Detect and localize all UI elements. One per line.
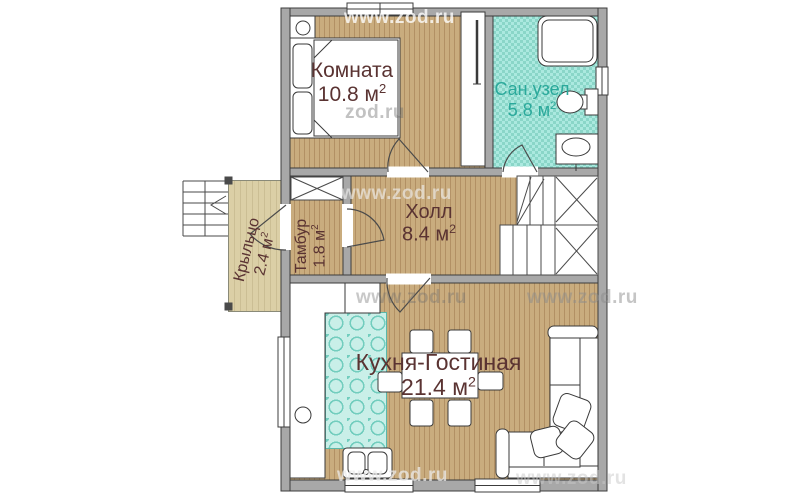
window-bottom-2: [475, 479, 540, 492]
bathroom-sink: [556, 134, 598, 171]
room-name: Сан.узел: [477, 80, 587, 100]
floor-plan-canvas: Комната 10.8 м2 Сан.узел 5.8 м2 Холл 8.4…: [0, 0, 795, 496]
room-area-value: 8.4 м: [402, 224, 449, 246]
room-label-bedroom: Комната 10.8 м2: [288, 59, 416, 106]
nightstand: [290, 16, 315, 40]
window-bottom-1: [345, 479, 413, 492]
room-area-sup: 2: [310, 224, 321, 230]
room-area: 5.8 м2: [477, 100, 587, 121]
wall-hall-kitchen: [290, 275, 598, 283]
room-area: 21.4 м2: [351, 375, 526, 400]
room-area-sup: 2: [468, 375, 476, 391]
staircase: [500, 176, 598, 275]
room-area-value: 1.8 м: [311, 230, 328, 268]
room-label-tambour: Тамбур 1.8 м2: [293, 191, 329, 301]
room-label-kitchen-living: Кухня-Гостиная 21.4 м2: [351, 350, 526, 401]
room-name: Холл: [379, 201, 479, 223]
room-name: Кухня-Гостиная: [351, 350, 526, 375]
kitchen-sink: [343, 448, 392, 478]
wall-bottom: [281, 480, 607, 491]
room-label-hall: Холл 8.4 м2: [379, 201, 479, 246]
hob: [295, 407, 311, 423]
room-label-bathroom: Сан.узел 5.8 м2: [477, 80, 587, 121]
room-area: 10.8 м2: [288, 82, 416, 106]
room-area-sup: 2: [379, 81, 386, 96]
porch-post: [225, 303, 232, 310]
wall-top: [281, 8, 607, 16]
chair: [410, 400, 433, 426]
room-area: 8.4 м2: [379, 223, 479, 246]
window-left: [278, 337, 290, 427]
room-area-value: 10.8 м: [318, 83, 379, 106]
shower: [538, 16, 597, 66]
room-area-value: 5.8 м: [508, 100, 550, 120]
stair-direction-arrow: [211, 196, 226, 214]
wall-bedroom-hall: [290, 168, 598, 176]
exterior-stairs: [183, 181, 228, 236]
room-name: Комната: [288, 59, 416, 82]
room-area-value: 21.4 м: [401, 374, 468, 400]
chair: [448, 400, 471, 426]
porch-details: [183, 177, 232, 310]
room-name: Тамбур: [293, 191, 311, 301]
room-area: 1.8 м2: [311, 191, 329, 301]
room-area-sup: 2: [449, 222, 456, 236]
room-area-sup: 2: [550, 100, 556, 112]
window-top: [347, 3, 413, 15]
